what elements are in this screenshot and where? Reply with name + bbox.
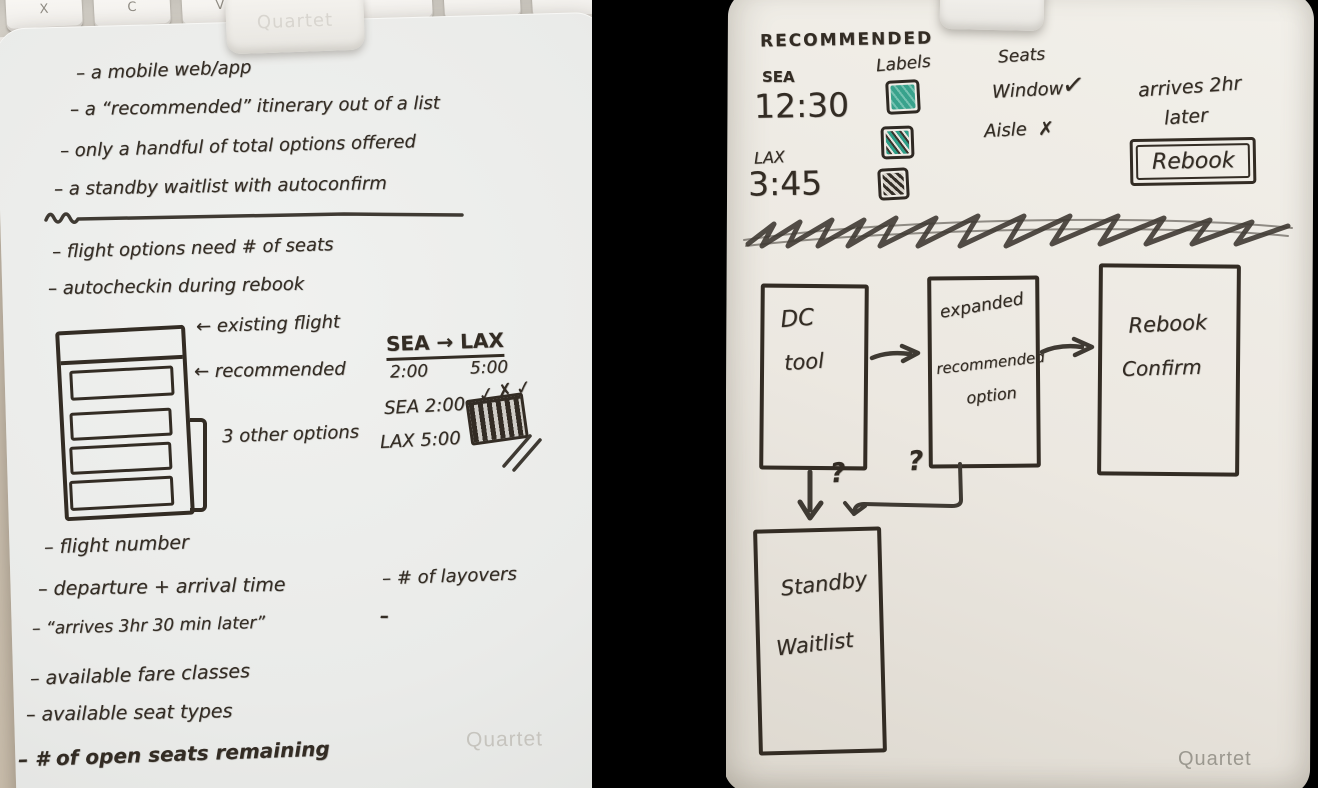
expanded-option-box: expanded recommended option <box>927 276 1041 469</box>
rebook-confirm-line2: Confirm <box>1122 355 1202 381</box>
note-line: – # of open seats remaining <box>18 737 330 772</box>
arrow-left-icon: ← <box>196 316 212 338</box>
existing-flight-label: ← existing flight <box>196 311 341 337</box>
note-line: – only a handful of total options offere… <box>60 131 416 161</box>
left-photo: X C V ⌘ command Quartet – a mobile web/a… <box>0 0 592 788</box>
two-whiteboard-photos: X C V ⌘ command Quartet – a mobile web/a… <box>0 0 1318 788</box>
label-text: recommended <box>215 359 346 382</box>
window-option: Window <box>991 78 1063 103</box>
note-line: – autocheckin during rebook <box>48 274 305 299</box>
standby-line2: Waitlist <box>775 628 855 661</box>
empty-bullet: – <box>380 606 389 627</box>
options-bracket <box>190 418 207 512</box>
label-checkbox-dark <box>877 167 910 201</box>
dark-scribble-fill <box>882 172 904 195</box>
expanded-line3: option <box>965 383 1017 408</box>
note-line: – available seat types <box>26 700 233 726</box>
right-board-content: RECOMMENDED SEA 12:30 LAX 3:45 Labels Se… <box>726 0 1318 788</box>
note-line: – flight options need # of seats <box>52 234 334 262</box>
arrives-note-line1: arrives 2hr <box>1137 72 1242 101</box>
labels-title: Labels <box>875 52 931 77</box>
dc-tool-line2: tool <box>783 349 824 375</box>
divider-squiggle <box>44 206 468 226</box>
leg1-note: SEA 2:00 <box>384 394 466 419</box>
aisle-option: Aisle <box>983 119 1027 142</box>
checkmark-icon: ✓ <box>1060 69 1086 102</box>
label-text: existing flight <box>216 311 340 336</box>
note-line: – a “recommended” itinerary out of a lis… <box>70 93 440 120</box>
left-board-content: – a mobile web/app – a “recommended” iti… <box>0 0 592 788</box>
expanded-line2: recommended <box>935 348 1045 378</box>
rebook-label: Rebook <box>1136 143 1251 180</box>
double-slash-icon <box>498 430 548 472</box>
flow-arrow-icon <box>868 342 926 368</box>
depart-time: 2:00 <box>390 361 429 382</box>
dc-tool-box: DC tool <box>759 284 869 471</box>
option-row <box>69 408 172 441</box>
standby-waitlist-box: Standby Waitlist <box>753 526 887 755</box>
mixed-scribble-fill <box>886 131 910 155</box>
seats-title: Seats <box>997 44 1045 67</box>
note-line: – a mobile web/app <box>76 57 252 84</box>
right-photo: RECOMMENDED SEA 12:30 LAX 3:45 Labels Se… <box>726 0 1318 788</box>
flight-list-wireframe <box>55 325 195 522</box>
quartet-watermark: Quartet <box>1178 748 1252 771</box>
quartet-watermark: Quartet <box>466 727 543 752</box>
option-row <box>69 476 174 511</box>
note-line: – available fare classes <box>30 660 251 690</box>
arrives-note-line2: later <box>1163 104 1208 129</box>
standby-line1: Standby <box>779 567 868 601</box>
option-row <box>69 442 172 475</box>
leg2-note: LAX 5:00 <box>380 428 462 453</box>
recommended-row <box>69 365 174 400</box>
depart-airport: SEA <box>762 68 795 86</box>
rebook-confirm-line1: Rebook <box>1128 310 1208 337</box>
dc-tool-line1: DC <box>780 305 816 334</box>
note-line: – flight number <box>44 531 190 558</box>
label-checkbox-mixed <box>880 125 914 159</box>
layovers-note: – # of layovers <box>382 564 517 590</box>
down-arrow-icon <box>796 468 824 526</box>
expanded-line1: expanded <box>938 289 1025 323</box>
flow-arrow-icon <box>1038 334 1100 362</box>
label-checkbox-teal <box>885 79 921 115</box>
note-line: – a standby waitlist with autoconfirm <box>54 173 387 200</box>
existing-flight-row <box>61 355 183 365</box>
branch-connector-arrow <box>834 460 970 524</box>
rebook-confirm-box: Rebook Confirm <box>1097 263 1241 476</box>
cross-icon: ✗ <box>1038 118 1054 140</box>
recommended-label: ← recommended <box>194 359 346 383</box>
note-line: – “arrives 3hr 30 min later” <box>32 613 266 639</box>
rebook-button-sketch: Rebook <box>1130 137 1257 186</box>
arrow-left-icon: ← <box>194 361 209 382</box>
teal-scribble-fill <box>890 84 915 109</box>
depart-time: 12:30 <box>754 85 850 126</box>
divider-zigzag <box>740 206 1296 252</box>
other-options-label: 3 other options <box>222 422 360 448</box>
route-heading: SEA → LAX <box>386 328 505 361</box>
recommended-heading: RECOMMENDED <box>760 28 933 51</box>
arrive-time: 3:45 <box>748 163 823 203</box>
arrive-time: 5:00 <box>470 357 509 378</box>
note-line: – departure + arrival time <box>38 574 286 600</box>
